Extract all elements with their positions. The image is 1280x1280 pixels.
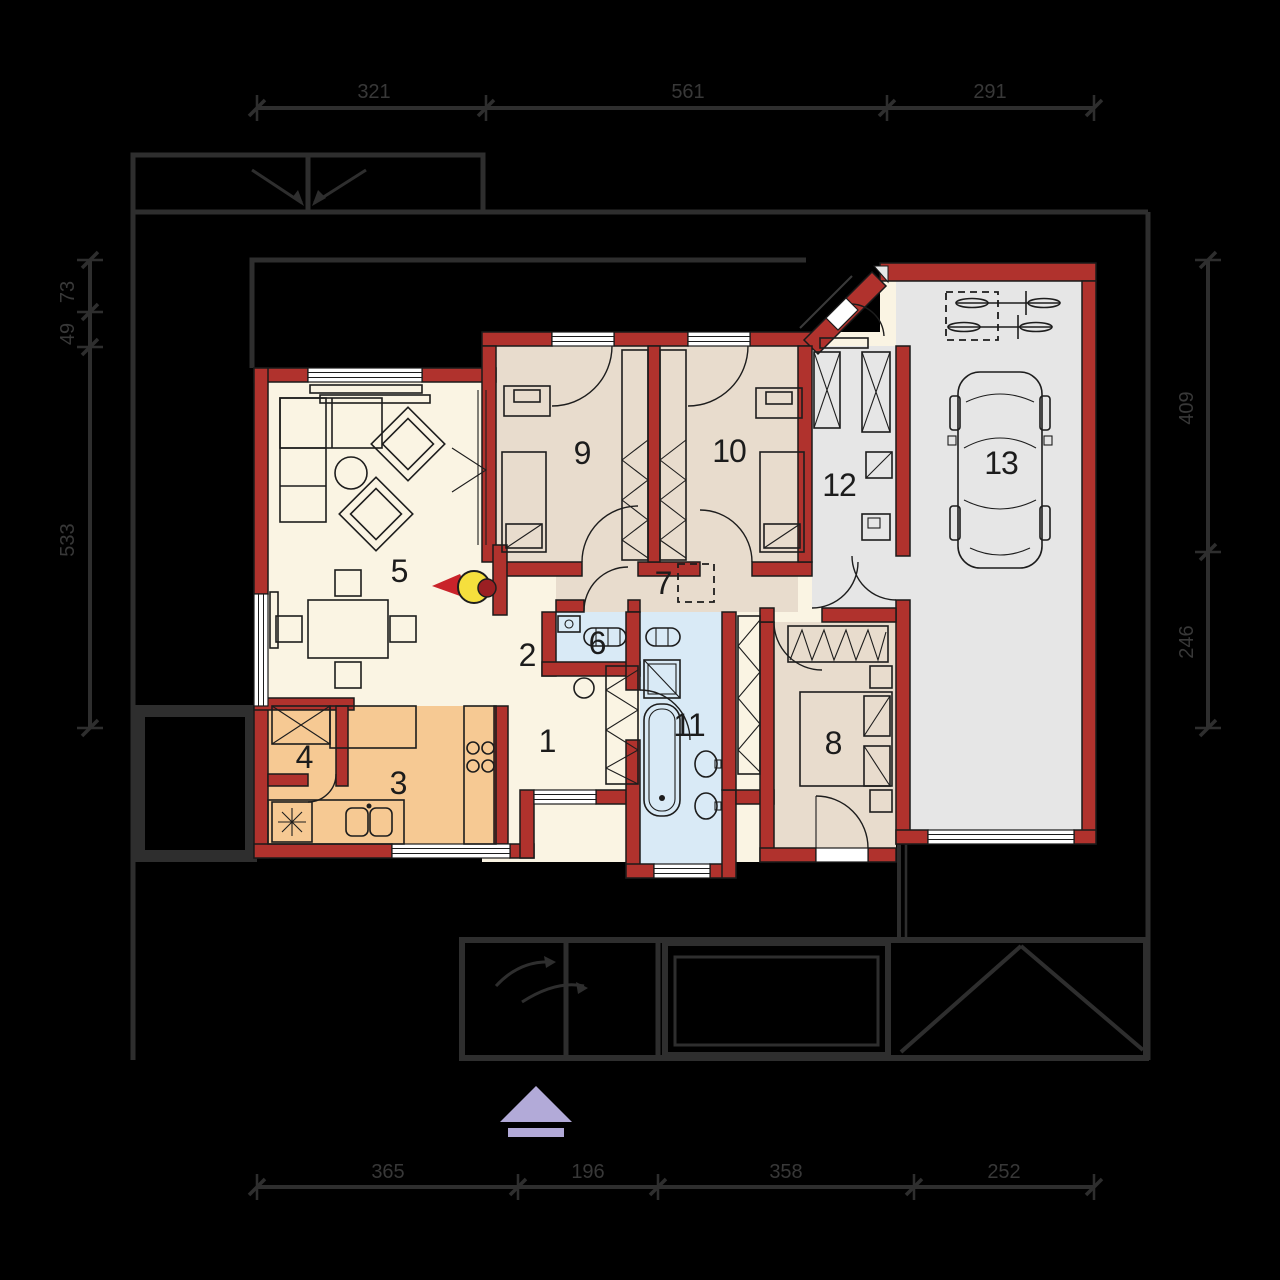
dim-bottom-4: 252 xyxy=(987,1161,1020,1183)
label-room-6: 6 xyxy=(589,625,606,661)
dim-top-2: 561 xyxy=(671,81,704,103)
label-room-9: 9 xyxy=(574,435,591,471)
label-room-7: 7 xyxy=(655,565,672,601)
dim-top-1: 321 xyxy=(357,81,390,103)
building: 1 2 3 4 5 6 7 8 9 10 11 12 13 xyxy=(254,263,1096,878)
label-room-11: 11 xyxy=(673,707,704,743)
floor-plan-drawing: 321 561 291 365 196 358 252 73 49 533 xyxy=(0,0,1280,1280)
label-room-4: 4 xyxy=(296,739,313,775)
terrace-door-hall xyxy=(534,790,596,804)
dim-bottom-1: 365 xyxy=(371,1161,404,1183)
dim-bottom-3: 358 xyxy=(769,1161,802,1183)
label-room-1: 1 xyxy=(539,723,556,759)
dim-top-3: 291 xyxy=(973,81,1006,103)
north-arrow-icon xyxy=(500,1086,572,1137)
garage-door xyxy=(928,830,1074,844)
dim-left-3: 533 xyxy=(57,523,79,556)
dim-left-2: 49 xyxy=(57,323,79,345)
floor-garage-13 xyxy=(896,281,1096,830)
dim-bottom-2: 196 xyxy=(571,1161,604,1183)
south-terrace-structure xyxy=(462,940,1146,1058)
window-bath-bay xyxy=(654,864,710,878)
window-living-left xyxy=(254,594,268,706)
label-room-10: 10 xyxy=(712,433,746,469)
label-room-12: 12 xyxy=(822,467,856,503)
dim-right-2: 246 xyxy=(1176,625,1198,658)
window-living-top xyxy=(308,368,422,382)
label-room-8: 8 xyxy=(825,725,842,761)
label-room-3: 3 xyxy=(390,765,407,801)
side-terrace-outline xyxy=(139,711,251,856)
label-room-13: 13 xyxy=(984,445,1018,481)
dim-left-1: 73 xyxy=(57,281,79,303)
dim-right-1: 409 xyxy=(1176,391,1198,424)
window-kitchen-bottom xyxy=(392,844,510,858)
label-room-5: 5 xyxy=(391,553,408,589)
label-room-2: 2 xyxy=(519,637,536,673)
floor-plan-canvas: 321 561 291 365 196 358 252 73 49 533 xyxy=(0,0,1280,1280)
